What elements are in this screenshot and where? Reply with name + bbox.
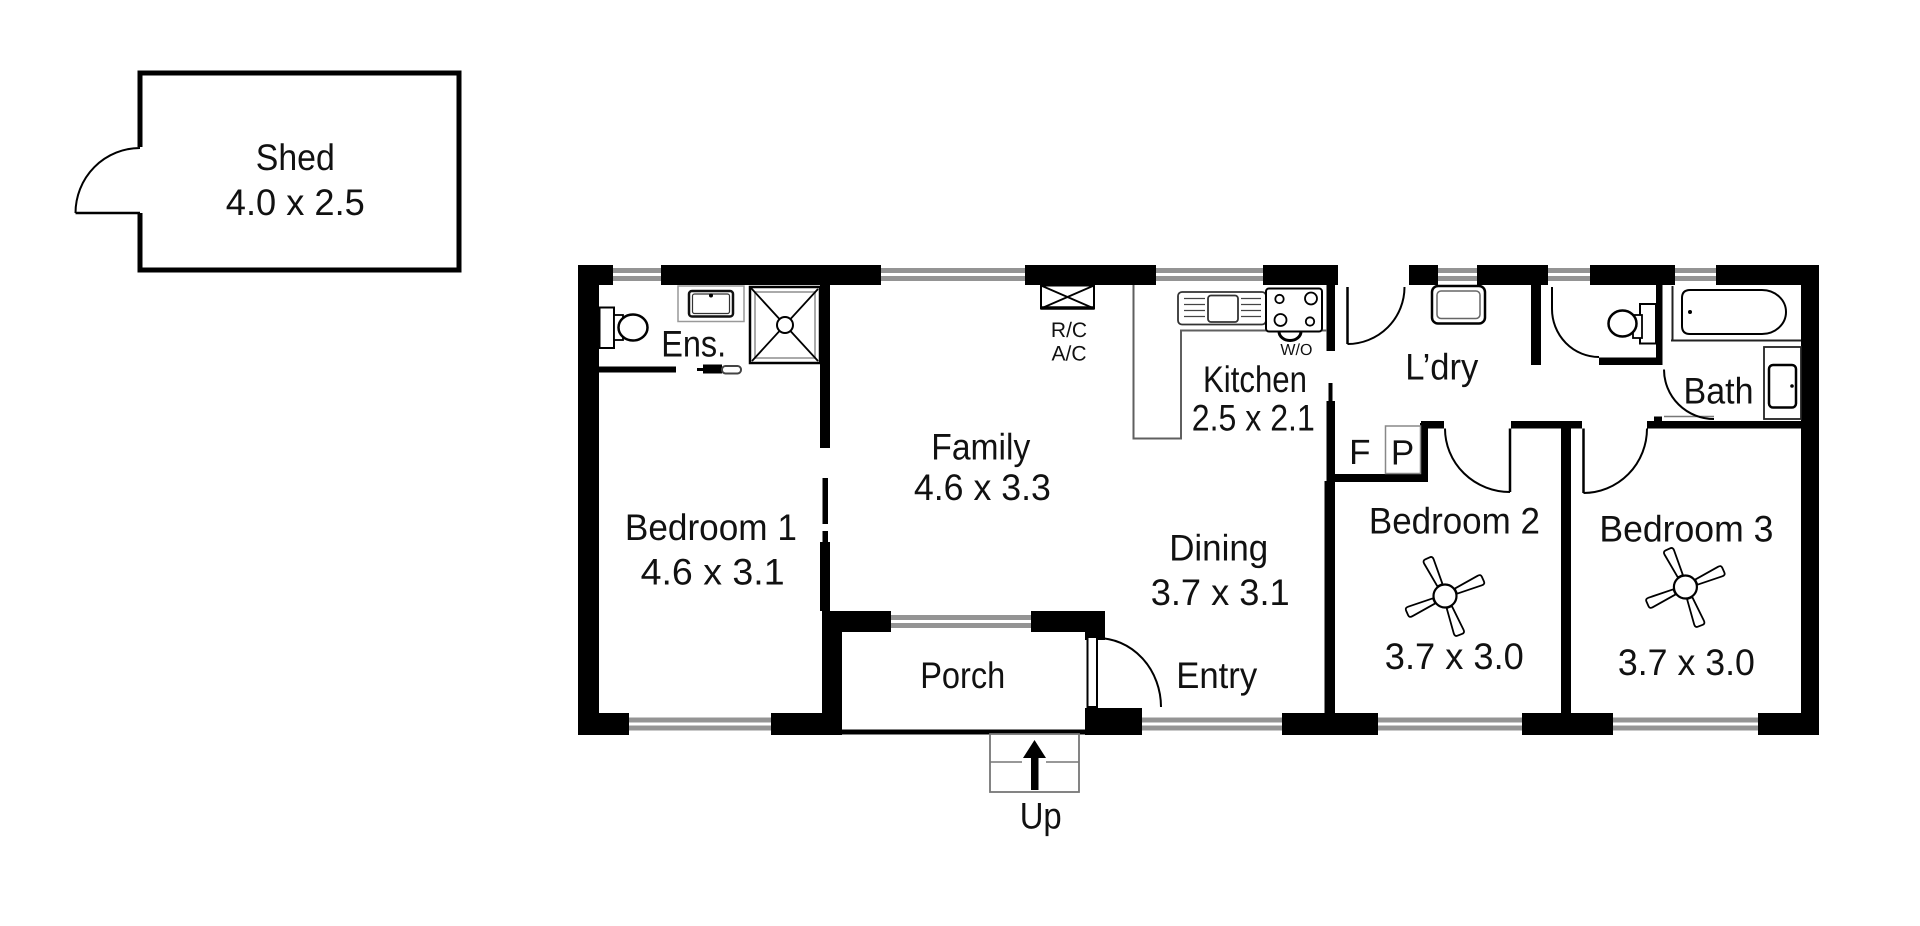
svg-text:Bedroom 3: Bedroom 3 <box>1599 509 1773 550</box>
svg-text:P: P <box>1391 434 1414 473</box>
svg-text:Up: Up <box>1020 796 1062 837</box>
svg-text:Porch: Porch <box>920 655 1005 696</box>
svg-text:F: F <box>1349 433 1370 472</box>
svg-text:Ens.: Ens. <box>661 324 726 365</box>
svg-text:Shed: Shed <box>256 137 335 178</box>
svg-text:3.7 x 3.1: 3.7 x 3.1 <box>1151 572 1290 613</box>
svg-text:Bedroom 2: Bedroom 2 <box>1369 501 1540 542</box>
svg-text:Kitchen: Kitchen <box>1203 359 1307 400</box>
svg-text:A/C: A/C <box>1051 343 1086 366</box>
svg-text:Family: Family <box>931 427 1030 468</box>
svg-text:2.5 x 2.1: 2.5 x 2.1 <box>1192 398 1315 439</box>
svg-text:Bath: Bath <box>1684 371 1754 412</box>
svg-text:W/O: W/O <box>1280 342 1312 359</box>
svg-text:3.7 x 3.0: 3.7 x 3.0 <box>1385 636 1524 677</box>
svg-text:Entry: Entry <box>1176 655 1257 696</box>
svg-text:4.6 x 3.1: 4.6 x 3.1 <box>641 552 785 593</box>
svg-text:Dining: Dining <box>1169 528 1268 569</box>
svg-text:R/C: R/C <box>1051 319 1087 342</box>
svg-text:3.7 x 3.0: 3.7 x 3.0 <box>1618 642 1755 683</box>
svg-text:4.6 x 3.3: 4.6 x 3.3 <box>914 467 1051 508</box>
svg-text:L’dry: L’dry <box>1405 347 1478 388</box>
svg-text:Bedroom 1: Bedroom 1 <box>625 507 797 548</box>
svg-text:4.0 x 2.5: 4.0 x 2.5 <box>226 182 365 223</box>
